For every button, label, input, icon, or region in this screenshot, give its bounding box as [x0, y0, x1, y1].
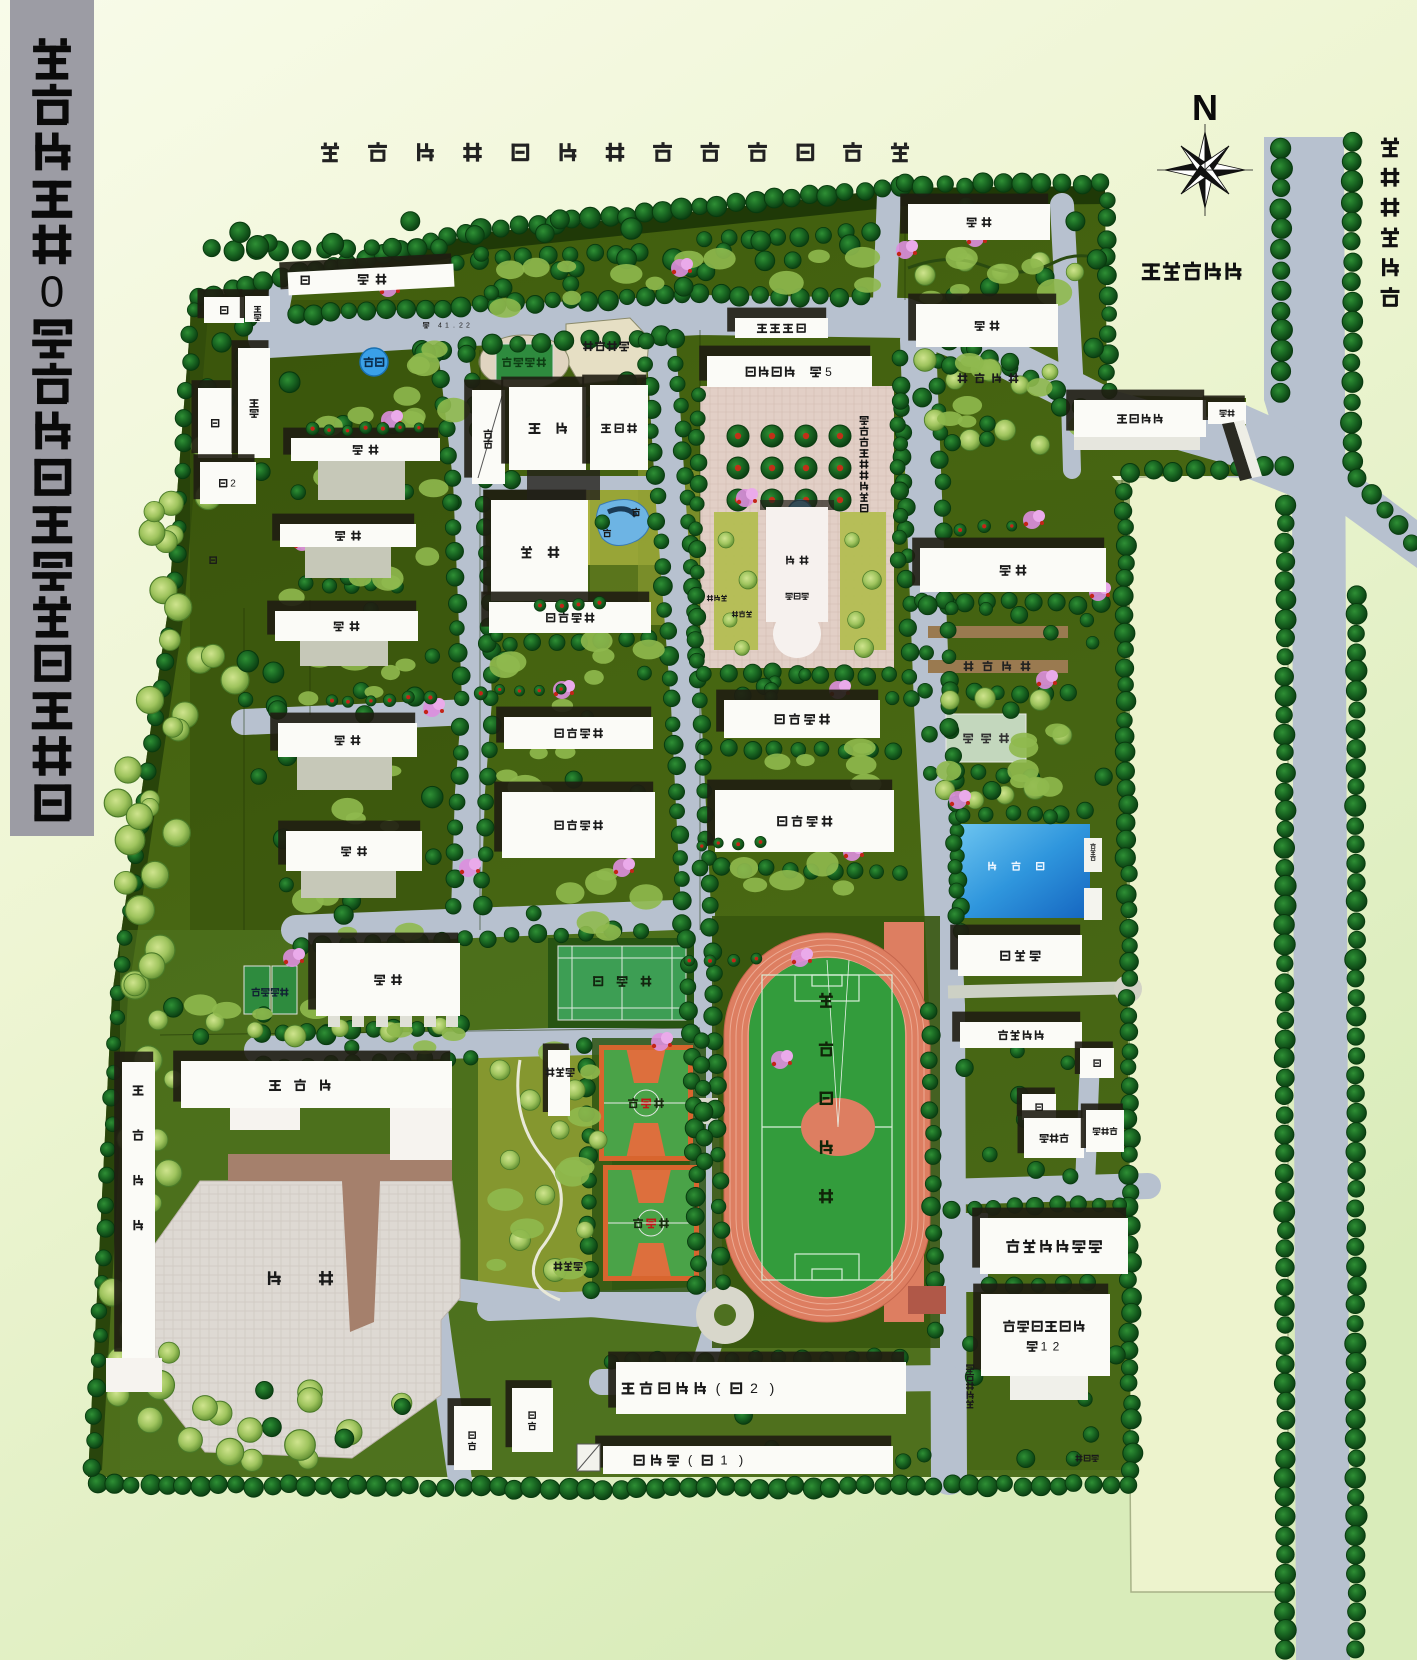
svg-text:(: ( — [716, 1380, 721, 1396]
svg-text:2: 2 — [750, 1380, 758, 1396]
svg-text:2: 2 — [1053, 1339, 1060, 1353]
svg-text:5: 5 — [825, 365, 832, 379]
svg-text:0: 0 — [40, 267, 64, 316]
svg-text:2: 2 — [230, 479, 236, 490]
svg-text:): ) — [739, 1453, 743, 1468]
svg-text:1: 1 — [720, 1453, 727, 1468]
svg-text:): ) — [770, 1380, 775, 1396]
svg-text:2: 2 — [459, 323, 463, 330]
svg-text:(: ( — [688, 1453, 693, 1468]
svg-text:4: 4 — [438, 323, 442, 330]
svg-text:1: 1 — [445, 323, 449, 330]
svg-text:N: N — [1192, 87, 1218, 128]
svg-text:2: 2 — [466, 323, 470, 330]
svg-text:.: . — [453, 323, 455, 330]
svg-text:1: 1 — [1041, 1339, 1048, 1353]
